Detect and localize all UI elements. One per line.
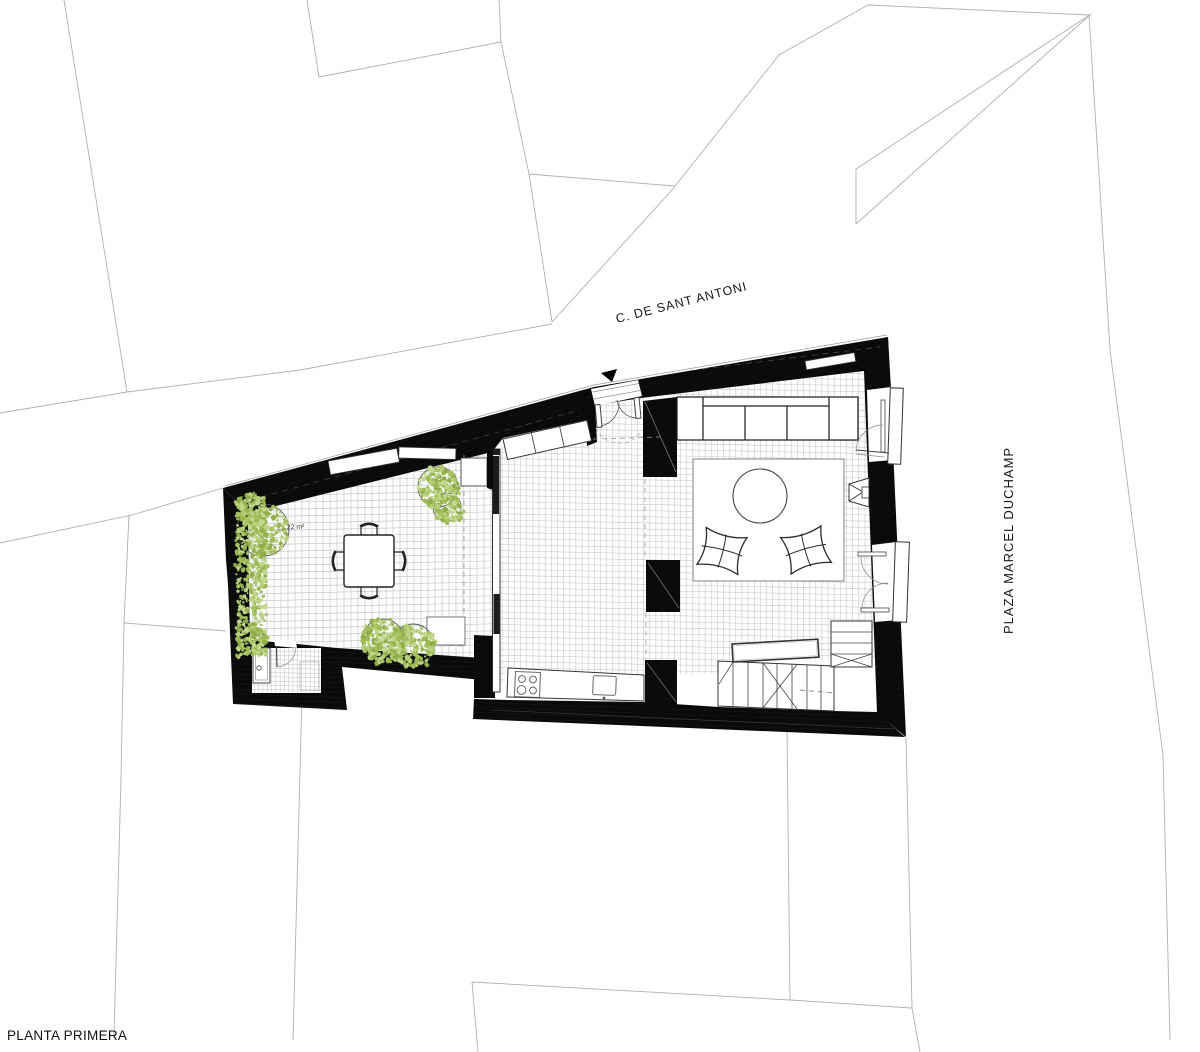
svg-text:PLAZA MARCEL DUCHAMP: PLAZA MARCEL DUCHAMP xyxy=(1001,447,1016,634)
svg-text:PLANTA PRIMERA: PLANTA PRIMERA xyxy=(7,1028,127,1043)
